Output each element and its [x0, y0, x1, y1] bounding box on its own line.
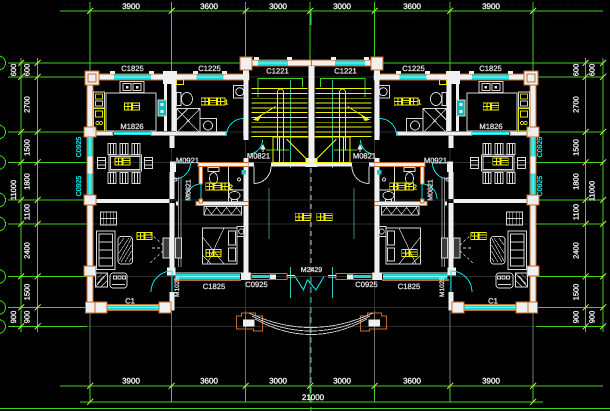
svg-text:M1026: M1026 [174, 277, 181, 297]
svg-text:1100: 1100 [23, 204, 32, 220]
svg-text:M0821: M0821 [247, 152, 270, 161]
svg-text:1: 1 [418, 100, 422, 107]
svg-text:3900: 3900 [122, 377, 140, 386]
svg-text:C1825: C1825 [479, 64, 501, 73]
svg-text:C0925: C0925 [76, 176, 83, 197]
svg-text:2: 2 [413, 185, 417, 192]
svg-text:C1: C1 [488, 297, 498, 306]
svg-text:1500: 1500 [572, 284, 581, 301]
svg-text:3600: 3600 [200, 2, 218, 11]
svg-text:1800: 1800 [23, 173, 32, 190]
svg-text:C1825: C1825 [398, 282, 420, 291]
svg-text:1100: 1100 [572, 204, 581, 220]
svg-text:C0925: C0925 [537, 137, 544, 158]
svg-text:2: 2 [229, 185, 233, 192]
svg-text:C0925: C0925 [537, 176, 544, 197]
svg-text:C1225: C1225 [198, 64, 220, 73]
svg-text:M1026: M1026 [439, 277, 446, 297]
svg-text:3000: 3000 [333, 377, 351, 386]
svg-text:900: 900 [572, 311, 581, 324]
svg-text:C1825: C1825 [203, 282, 225, 291]
svg-text:3900: 3900 [122, 2, 140, 11]
svg-text:C1221: C1221 [266, 67, 288, 76]
svg-text:C1221: C1221 [334, 67, 356, 76]
svg-text:3000: 3000 [333, 2, 351, 11]
svg-text:1500: 1500 [23, 284, 32, 301]
svg-text:3000: 3000 [269, 2, 287, 11]
svg-text:M1826: M1826 [479, 122, 502, 131]
svg-text:900: 900 [588, 311, 597, 324]
svg-text:C1225: C1225 [402, 64, 424, 73]
svg-text:3900: 3900 [482, 377, 500, 386]
svg-text:1: 1 [225, 100, 229, 107]
svg-text:600: 600 [572, 64, 581, 77]
svg-text:3000: 3000 [269, 377, 287, 386]
svg-text:M0921: M0921 [176, 156, 199, 165]
svg-text:3600: 3600 [403, 377, 421, 386]
svg-text:2700: 2700 [572, 96, 581, 113]
svg-text:C0925: C0925 [76, 137, 83, 158]
svg-text:1800: 1800 [572, 173, 581, 190]
svg-text:11000: 11000 [9, 180, 18, 200]
svg-text:2400: 2400 [572, 242, 581, 259]
svg-text:M0821: M0821 [353, 152, 376, 161]
svg-text:M1826: M1826 [120, 122, 143, 131]
svg-text:21000: 21000 [302, 393, 325, 402]
svg-text:M2429: M2429 [301, 267, 323, 274]
svg-text:600: 600 [588, 64, 597, 77]
svg-text:11000: 11000 [588, 181, 597, 201]
svg-text:3600: 3600 [200, 377, 218, 386]
svg-text:900: 900 [9, 311, 18, 324]
svg-text:C0925: C0925 [355, 280, 377, 289]
svg-text:1500: 1500 [23, 139, 32, 156]
svg-text:3600: 3600 [403, 2, 421, 11]
svg-text:2700: 2700 [23, 96, 32, 113]
svg-text:C0925: C0925 [245, 280, 267, 289]
svg-text:3900: 3900 [482, 2, 500, 11]
svg-text:900: 900 [23, 311, 32, 324]
svg-text:1500: 1500 [572, 139, 581, 156]
svg-text:C1: C1 [125, 297, 135, 306]
svg-text:M0921: M0921 [424, 156, 447, 165]
svg-text:M0821: M0821 [186, 179, 193, 201]
svg-text:600: 600 [23, 64, 32, 77]
svg-text:600: 600 [9, 64, 18, 77]
svg-text:C1825: C1825 [121, 64, 143, 73]
svg-text:M0821: M0821 [428, 179, 435, 201]
svg-text:2400: 2400 [23, 242, 32, 259]
